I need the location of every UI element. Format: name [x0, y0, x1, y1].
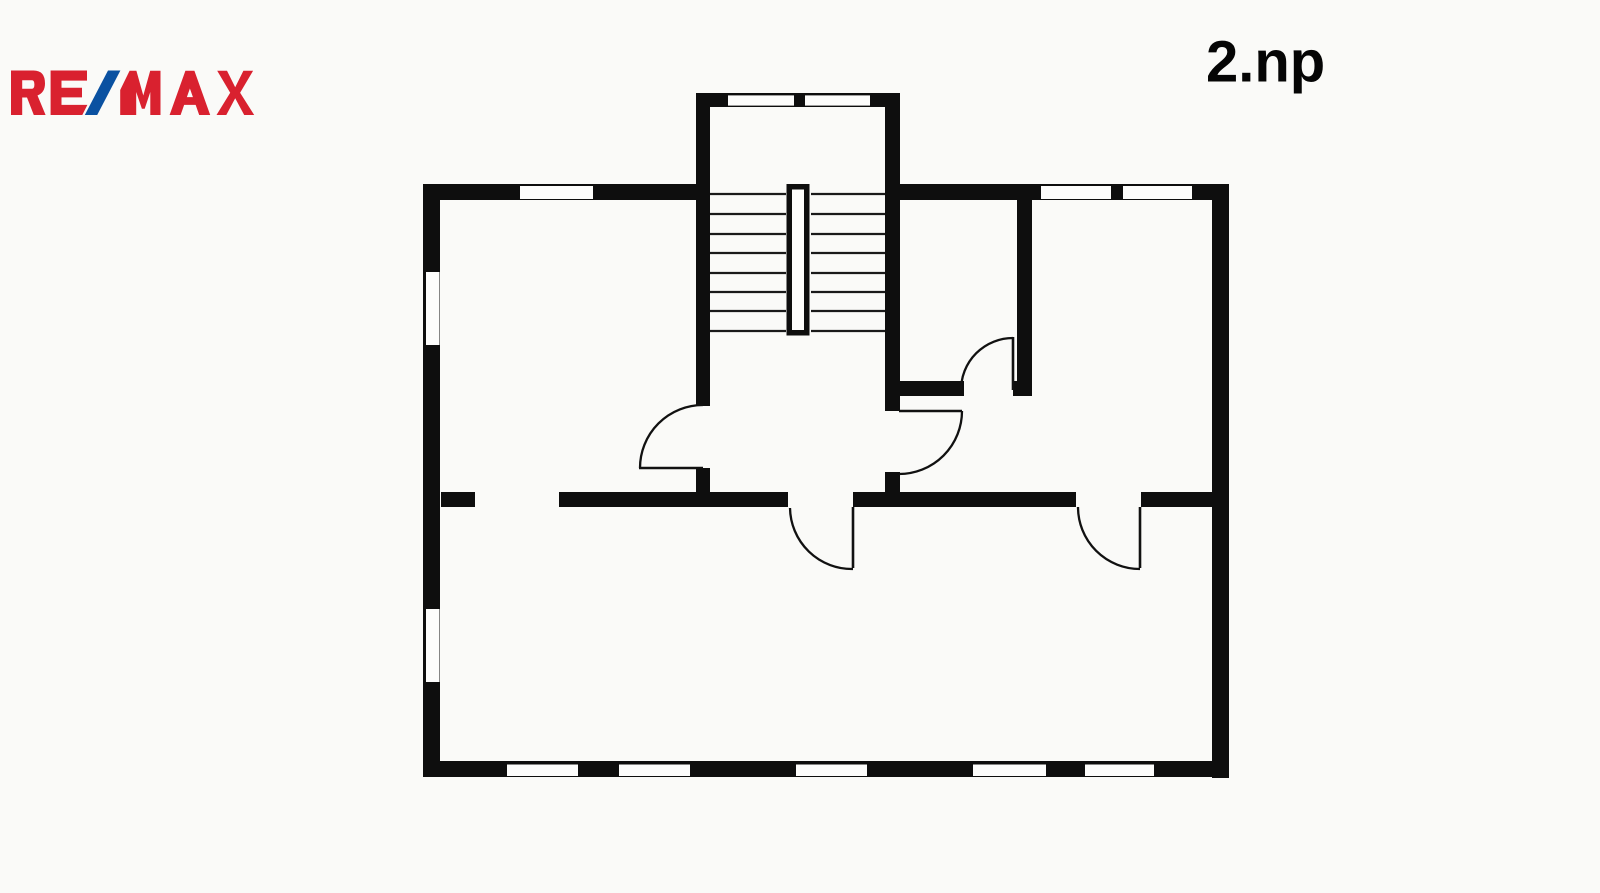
- svg-text:2.np: 2.np: [1206, 30, 1325, 95]
